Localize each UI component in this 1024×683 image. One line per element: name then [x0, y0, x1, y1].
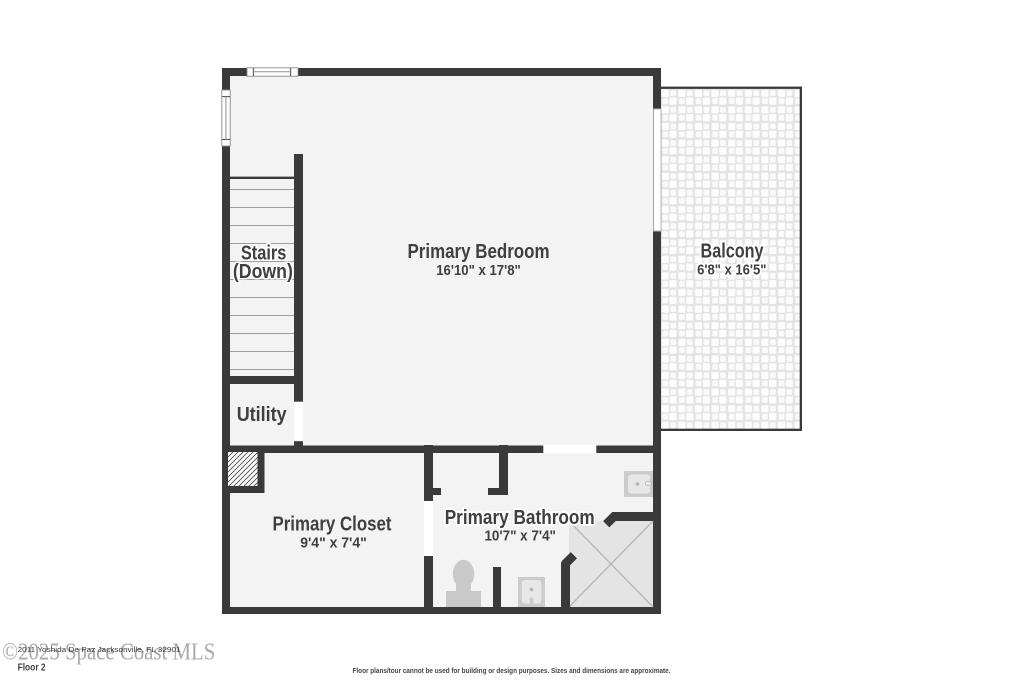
- svg-text:Utility: Utility: [237, 404, 288, 426]
- svg-text:Primary Bedroom: Primary Bedroom: [408, 241, 550, 263]
- svg-text:(Down): (Down): [233, 261, 293, 283]
- svg-text:16'10" x 17'8": 16'10" x 17'8": [436, 262, 521, 279]
- svg-text:Primary Closet: Primary Closet: [273, 514, 392, 536]
- svg-text:Balcony: Balcony: [701, 241, 765, 263]
- svg-text:Floor 2: Floor 2: [18, 662, 46, 673]
- svg-text:9'4" x 7'4": 9'4" x 7'4": [300, 535, 367, 552]
- svg-text:Primary Bathroom: Primary Bathroom: [445, 507, 595, 529]
- svg-text:Floor plans/tour cannot be use: Floor plans/tour cannot be used for buil…: [353, 668, 671, 675]
- svg-text:10'7" x 7'4": 10'7" x 7'4": [484, 527, 556, 544]
- svg-text:2011 Yoshida De Paz Jacksonvil: 2011 Yoshida De Paz Jacksonville, FL 329…: [18, 645, 181, 654]
- svg-text:6'8" x 16'5": 6'8" x 16'5": [697, 262, 766, 279]
